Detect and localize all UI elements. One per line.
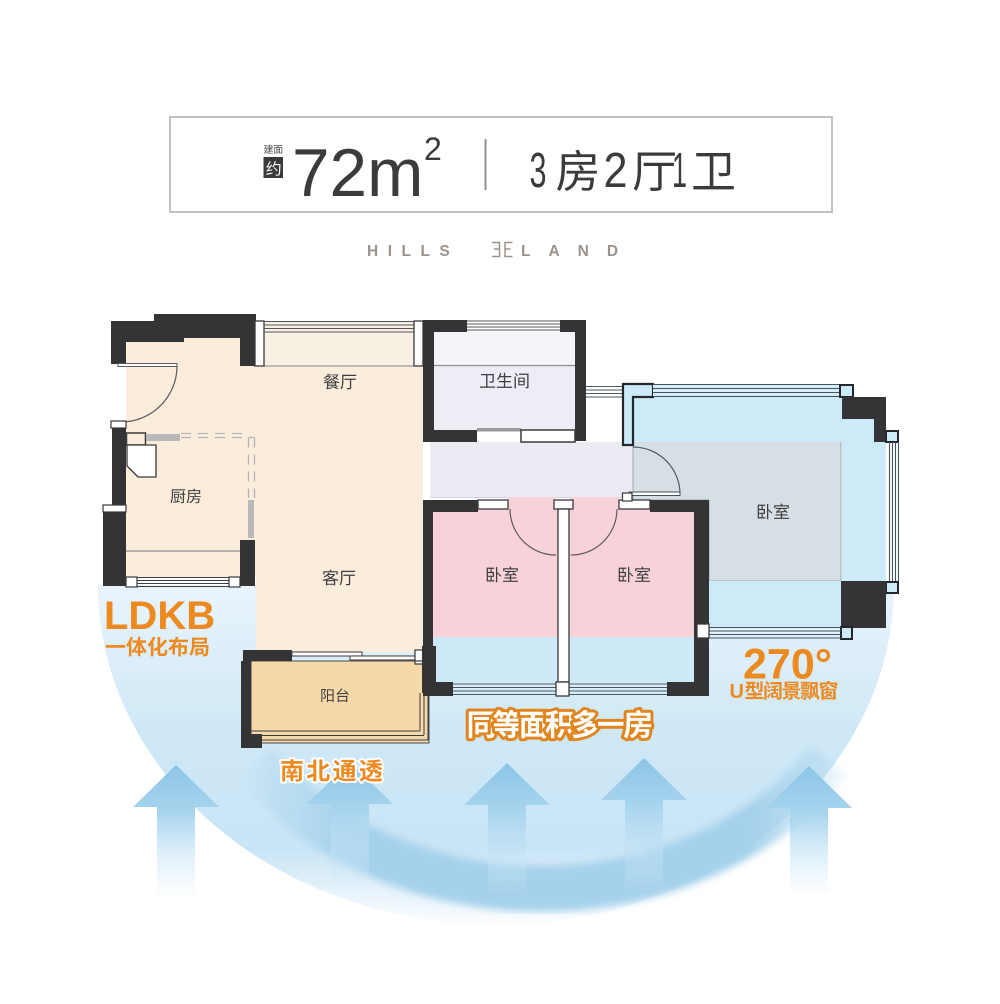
svg-text:72m: 72m xyxy=(292,136,423,211)
svg-text:1: 1 xyxy=(672,144,687,198)
svg-text:3: 3 xyxy=(530,144,547,198)
svg-text:U: U xyxy=(730,681,744,703)
svg-text:2: 2 xyxy=(424,131,442,167)
svg-text:HILLS: HILLS xyxy=(367,243,459,260)
svg-text:LAND: LAND xyxy=(521,243,636,260)
svg-text:LDKB: LDKB xyxy=(104,594,215,638)
svg-text:2: 2 xyxy=(604,144,628,198)
svg-text:270°: 270° xyxy=(743,641,832,689)
